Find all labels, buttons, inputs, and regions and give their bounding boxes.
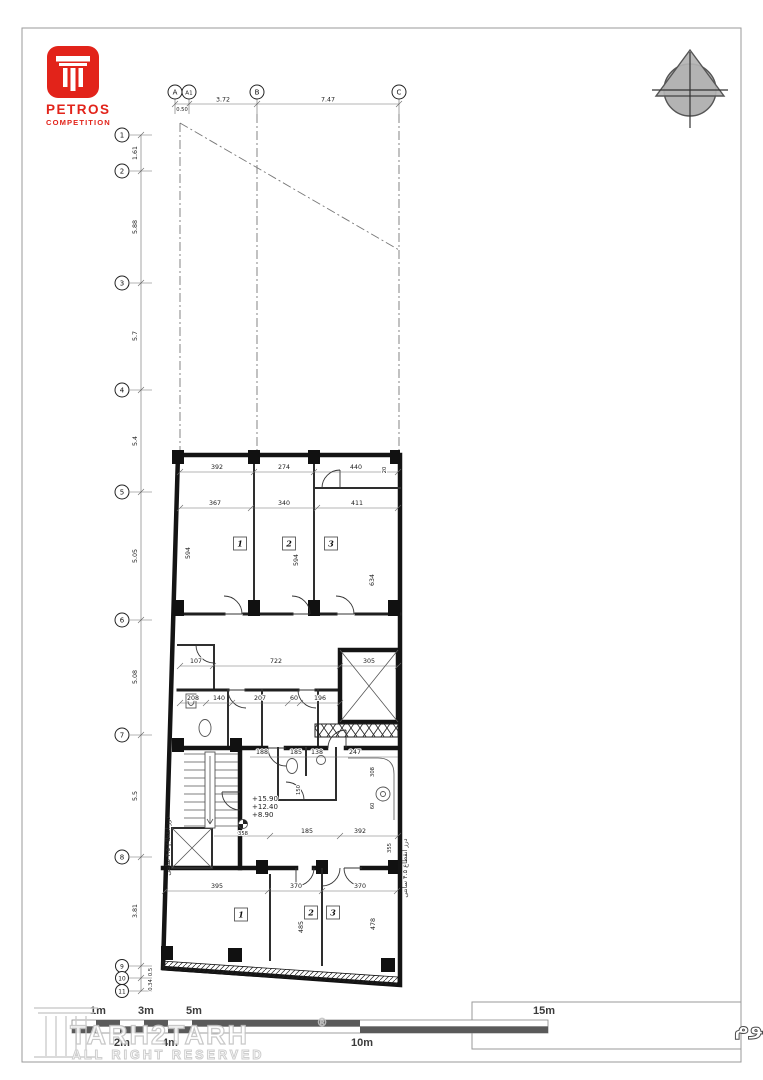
dim-v1: 594	[185, 547, 192, 559]
dim-row-9-10: 0.5	[148, 968, 154, 976]
sheet-border	[22, 28, 741, 1062]
dim-w1: 208	[187, 695, 199, 702]
dim-m3: 138	[311, 749, 323, 756]
drawing-sheet: PETROS COMPETITION A A1 B C 0.50 3.72 7.…	[0, 0, 763, 1080]
upper-room-2: 2	[285, 539, 292, 549]
dim-v2: 594	[293, 554, 300, 566]
expansion-joint-note-right: درز انقطاع ۴.۵ سانتی	[401, 838, 409, 897]
dim-v4: 20	[382, 467, 388, 474]
dim-m1: 188	[256, 749, 268, 756]
column-grid-top: A A1 B C 0.50 3.72 7.47	[168, 85, 406, 458]
dim-l2: 370	[290, 883, 302, 890]
logo-sub-text: COMPETITION	[46, 118, 111, 127]
dim-k3: 355	[387, 843, 393, 853]
drawing-title: پلان اندازه گذاری طبقات اول تا سوم	[734, 1014, 763, 1039]
dim-w3: 207	[254, 695, 266, 702]
grid-bubble-1: 1	[120, 132, 124, 140]
level-point-number: 358	[238, 831, 248, 837]
grid-bubble-4: 4	[120, 387, 125, 395]
section-hatch-wall	[162, 961, 398, 986]
dim-u4: 367	[209, 500, 221, 507]
light-well	[172, 828, 212, 868]
grid-bubble-7: 7	[120, 732, 124, 740]
dim-row-3-4: 5.7	[132, 331, 139, 341]
dim-lv2: 478	[370, 918, 377, 930]
grid-bubble-a1: A1	[185, 91, 193, 97]
dim-w2: 140	[213, 695, 225, 702]
site-boundary	[180, 123, 399, 455]
dim-m4: 247	[349, 749, 361, 756]
grid-bubble-3: 3	[120, 280, 124, 288]
dim-w4: 60	[290, 695, 298, 702]
dim-row-1-2: 1.61	[132, 146, 139, 160]
dim-lv1: 485	[298, 921, 305, 933]
dim-k1: 185	[301, 828, 313, 835]
north-arrow-icon	[652, 50, 728, 128]
grid-bubble-6: 6	[120, 617, 125, 625]
upper-room-3: 3	[328, 539, 334, 549]
dim-l3: 370	[354, 883, 366, 890]
dim-u5: 340	[278, 500, 290, 507]
plan-dimensions: 392 274 440 367 340 411 594 594 634 20 1…	[162, 464, 401, 933]
scale-label-10m: 10m	[351, 1037, 373, 1049]
grid-bubble-b: B	[255, 89, 260, 97]
dim-v3: 634	[369, 574, 376, 586]
petros-logo: PETROS COMPETITION	[46, 46, 111, 127]
dim-m6: 308	[370, 767, 376, 777]
dim-k2: 392	[354, 828, 366, 835]
structural-columns	[161, 450, 400, 972]
dim-row-4-5: 5.4	[132, 436, 139, 446]
dim-row-5-6: 5.05	[132, 549, 139, 563]
grid-bubble-5: 5	[120, 489, 124, 497]
expansion-joint-note-left: درز انقطاع ۴.۵ سانتی	[164, 816, 172, 875]
grid-bubble-8: 8	[120, 854, 124, 862]
level-2: +12.40	[252, 803, 278, 811]
lower-room-3: 3	[330, 908, 336, 918]
grid-bubble-10: 10	[118, 977, 126, 983]
watermark: TARH2TARH ® ALL RIGHT RESERVED	[34, 1008, 326, 1062]
dim-u6: 411	[351, 500, 363, 507]
dim-c1: 107	[190, 658, 202, 665]
row-grid-left: 1 2 3 4 5 6 7 8 9 10 11 1.61 5.88 5.7 5.…	[115, 128, 154, 998]
dim-m5: 150	[296, 785, 302, 795]
grid-bubble-9: 9	[120, 965, 124, 971]
dim-row-7-8: 5.5	[132, 791, 139, 801]
scale-label-3m: 3m	[138, 1005, 154, 1017]
grid-bubble-11: 11	[118, 990, 126, 996]
dim-w5: 196	[314, 695, 326, 702]
dim-u2: 274	[278, 464, 290, 471]
grid-bubble-2: 2	[120, 168, 124, 176]
upper-room-1: 1	[237, 539, 243, 549]
dim-row-10-11: 0.34	[148, 979, 154, 991]
dim-row-6-7: 5.08	[132, 670, 139, 684]
grid-bubble-c: C	[397, 89, 402, 97]
level-3: +15.90	[252, 795, 278, 803]
dim-u3: 440	[350, 464, 362, 471]
scale-label-1m: 1m	[90, 1005, 106, 1017]
dim-row-2-3: 5.88	[132, 220, 139, 234]
lower-room-1: 1	[238, 910, 244, 920]
dim-row-8-9: 3.81	[132, 904, 139, 918]
dim-a1-b: 3.72	[216, 97, 230, 104]
dim-a-a1: 0.50	[176, 107, 188, 113]
doors	[196, 470, 362, 886]
scale-label-5m: 5m	[186, 1005, 202, 1017]
elevator-shaft	[315, 650, 398, 737]
dim-c3: 305	[363, 658, 375, 665]
watermark-rights: ALL RIGHT RESERVED	[72, 1048, 264, 1062]
dim-u1: 392	[211, 464, 223, 471]
dim-l1: 395	[211, 883, 223, 890]
dim-c2: 722	[270, 658, 282, 665]
dim-b-c: 7.47	[321, 97, 335, 104]
staircase	[184, 752, 238, 828]
grid-bubble-a: A	[173, 89, 178, 97]
dim-m2: 185	[290, 749, 302, 756]
watermark-brand: TARH2TARH	[70, 1020, 249, 1050]
lower-room-2: 2	[307, 908, 314, 918]
level-marks: +15.90 +12.40 +8.90 358	[238, 795, 278, 837]
scale-label-15m: 15m	[533, 1005, 555, 1017]
watermark-registered: ®	[318, 1017, 326, 1029]
dim-m7: 60	[370, 803, 376, 810]
logo-brand-text: PETROS	[46, 102, 111, 117]
level-1: +8.90	[252, 811, 273, 819]
floor-plan-canvas: PETROS COMPETITION A A1 B C 0.50 3.72 7.…	[0, 0, 763, 1080]
